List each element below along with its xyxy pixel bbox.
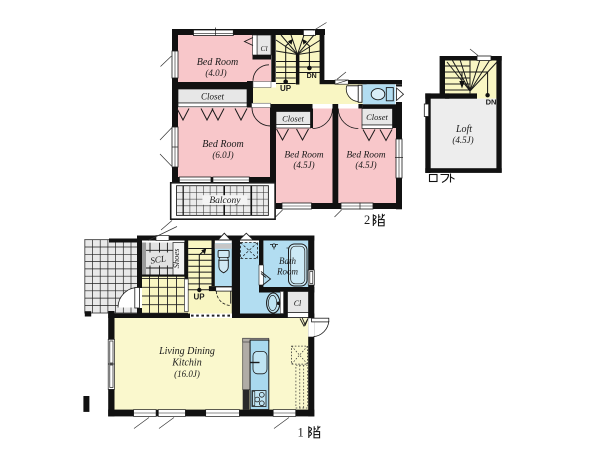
svg-text:DN: DN [486,98,497,107]
svg-text:Living Dining: Living Dining [158,346,215,357]
svg-text:Shoes: Shoes [171,248,181,269]
svg-text:Loft: Loft [455,124,472,135]
svg-text:DN: DN [307,73,317,80]
svg-text:1: 1 [298,426,304,440]
svg-text:(4.5J): (4.5J) [293,160,314,170]
svg-text:Balcony: Balcony [209,196,241,206]
svg-text:Cl: Cl [260,44,267,53]
svg-text:Cl: Cl [294,299,302,308]
svg-text:UP: UP [193,293,205,302]
svg-text:Kitchin: Kitchin [171,358,201,369]
svg-text:Bed Room: Bed Room [284,151,323,161]
svg-text:(4.5J): (4.5J) [355,160,376,170]
svg-text:(4.5J): (4.5J) [452,135,473,145]
svg-text:UP: UP [280,84,292,93]
svg-text:Closet: Closet [282,114,304,124]
svg-text:Bed Room: Bed Room [202,139,243,150]
svg-text:Closet: Closet [366,112,388,122]
svg-text:2: 2 [364,213,370,227]
svg-text:Bed Room: Bed Room [197,57,238,68]
svg-text:(16.0J): (16.0J) [174,369,200,379]
svg-text:(4.0J): (4.0J) [205,68,226,78]
svg-text:Bath: Bath [279,256,296,266]
svg-text:Closet: Closet [201,92,225,102]
svg-text:Bed Room: Bed Room [346,151,385,161]
svg-text:Room: Room [276,267,298,277]
svg-text:(6.0J): (6.0J) [212,150,233,160]
